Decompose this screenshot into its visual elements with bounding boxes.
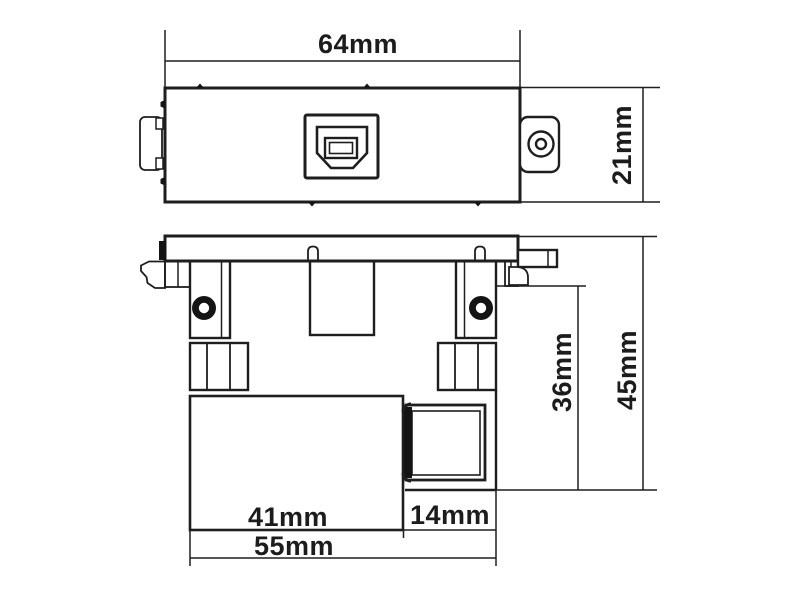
left-flange-lip	[165, 261, 190, 287]
nub-bottom-right	[474, 202, 482, 207]
left-post	[190, 261, 230, 338]
left-rib-outline	[190, 343, 248, 390]
right-rib-lines	[455, 343, 478, 390]
usb-side-inner	[412, 411, 480, 475]
right-rib-box	[438, 343, 496, 390]
flange-bar	[165, 236, 518, 261]
mold-nubs	[161, 84, 483, 207]
dimension-label-total-width: 55mm	[254, 531, 334, 561]
dimension-body-height: 36mm	[496, 286, 586, 490]
nub-top-right	[363, 84, 371, 89]
usb-side-base-bar	[404, 407, 412, 478]
dimension-label-connector-width: 14mm	[410, 500, 490, 530]
center-block	[310, 261, 374, 335]
dimension-label-body-height: 36mm	[547, 332, 577, 412]
technical-drawing-canvas: 64mm	[0, 0, 800, 600]
left-tab-notch-top	[156, 118, 163, 129]
top-view: 64mm	[140, 29, 660, 207]
dimension-label-top-height: 21mm	[607, 105, 637, 185]
left-rib-lines	[207, 343, 230, 390]
right-hole-center	[476, 303, 486, 313]
dimension-bottom-widths: 41mm 14mm 55mm	[190, 490, 496, 566]
flange-pin-right	[475, 247, 485, 262]
dimension-top-width: 64mm	[165, 29, 520, 88]
nub-left-upper	[161, 100, 166, 109]
right-latch	[509, 250, 557, 285]
usb-connector-side	[403, 404, 485, 481]
faceplate-body-outline	[165, 88, 520, 202]
usb-side-shell	[406, 405, 485, 480]
nub-top-left	[196, 84, 204, 89]
dimension-label-total-height: 45mm	[612, 330, 642, 410]
left-tab-notch-bottom	[156, 158, 163, 169]
side-view: 41mm 14mm 55mm 36mm 45mm	[141, 236, 657, 566]
usb-b-port-face	[305, 115, 378, 178]
nub-bottom-left	[308, 202, 316, 207]
left-rib-box	[190, 343, 248, 390]
dimension-label-body-width: 41mm	[248, 502, 328, 532]
right-rib-outline	[438, 343, 496, 390]
latch-hook	[509, 267, 528, 285]
right-mount-ear	[520, 117, 559, 172]
right-post	[456, 261, 496, 338]
flange-left-stop	[159, 241, 166, 260]
nub-left-lower	[161, 177, 166, 186]
usb-b-tongue-inner	[330, 143, 353, 154]
latch-arm	[518, 250, 557, 267]
technical-drawing: 64mm	[0, 0, 800, 600]
left-hole-center	[199, 303, 209, 313]
flange-pin-left	[308, 247, 318, 262]
dimension-label-top-width: 64mm	[318, 29, 398, 59]
left-snap-tab	[140, 117, 163, 170]
left-clip-hook	[141, 262, 165, 289]
